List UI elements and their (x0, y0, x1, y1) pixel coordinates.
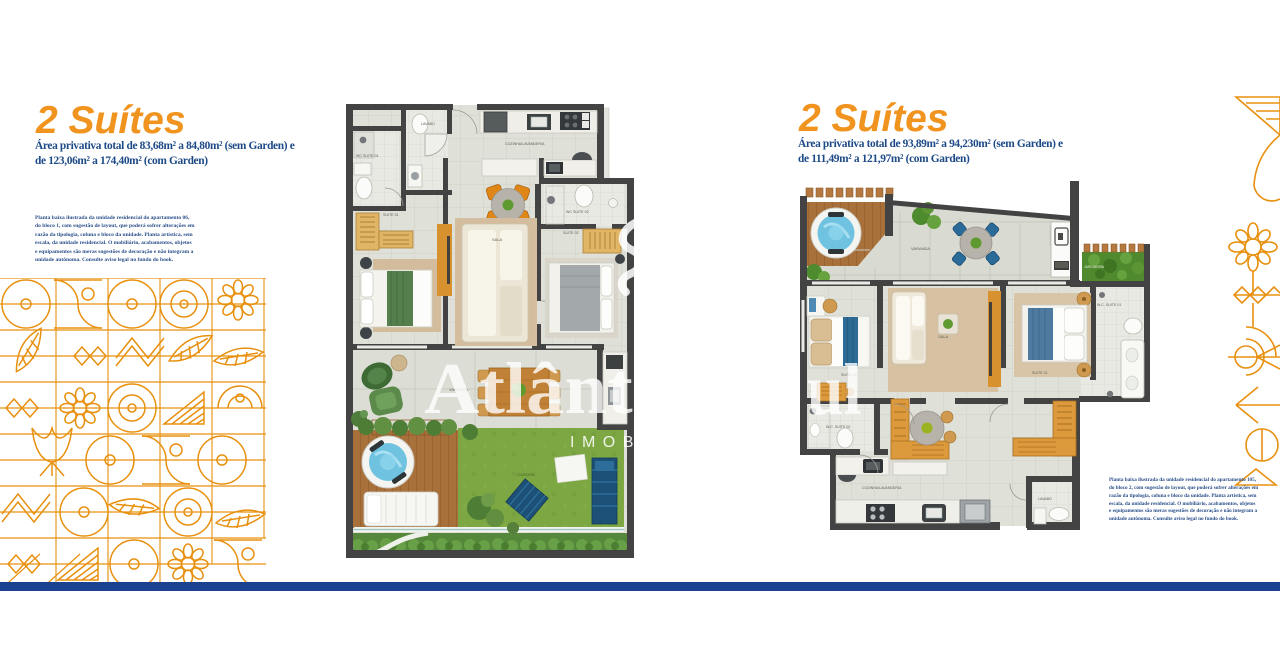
svg-text:COZINHA/LAVANDERIA: COZINHA/LAVANDERIA (862, 486, 902, 490)
svg-text:LAVABO: LAVABO (421, 122, 435, 126)
svg-text:SALA: SALA (938, 334, 949, 339)
svg-text:SALA: SALA (492, 237, 503, 242)
svg-text:LAVABO: LAVABO (1038, 497, 1052, 501)
svg-text:GARDEN: GARDEN (517, 472, 534, 477)
svg-text:SUITE 01: SUITE 01 (383, 213, 399, 217)
svg-text:COZINHA/LAVANDERIA: COZINHA/LAVANDERIA (505, 142, 545, 146)
svg-text:WC SUITE 02: WC SUITE 02 (566, 210, 589, 214)
svg-text:WC SUITE 01: WC SUITE 01 (356, 154, 379, 158)
svg-text:W.C. SUITE 01: W.C. SUITE 01 (1097, 303, 1121, 307)
svg-text:VARANDA: VARANDA (911, 246, 930, 251)
svg-text:SUITE 02: SUITE 02 (563, 231, 579, 235)
svg-text:SUITE 01: SUITE 01 (1032, 371, 1048, 375)
svg-text:JARDINEIRA: JARDINEIRA (1084, 265, 1105, 269)
